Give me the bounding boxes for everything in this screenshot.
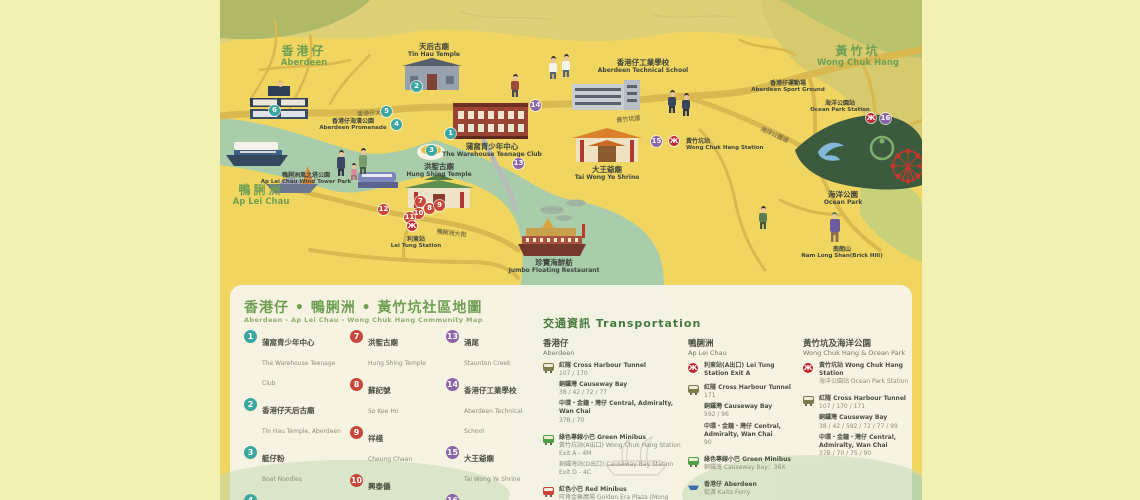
map-marker-6: 6 [269, 105, 280, 116]
label-lei-tung-station: 利東站Lei Tung Station [391, 236, 441, 250]
map-marker-5: 5 [381, 106, 392, 117]
label-nam-long-shan: 南朗山Nam Long Shan(Brick Hill) [801, 246, 882, 260]
map-marker-13: 13 [513, 158, 524, 169]
mtr-icon [407, 221, 417, 231]
legend-number: 13 [446, 330, 459, 343]
legend-number: 4 [244, 494, 257, 500]
bus-icon [543, 363, 554, 371]
label-technical-school: 香港仔工業學校Aberdeen Technical School [598, 58, 688, 74]
transport-row: 紅隧 Cross Harbour Tunnel 107 / 170 銅鑼灣 Ca… [543, 362, 681, 428]
transport-row: 紅色小巴 Red Minibus 旺角金雞廣場 Golden Era Plaza… [543, 486, 681, 500]
legend-item: 3艇仔粉Boat Noodles [244, 446, 344, 486]
fishmonger-figure [275, 80, 285, 96]
walker-figure [681, 93, 691, 116]
transport-row: 紅隧 Cross Harbour Tunnel 107 / 170 / 171 … [803, 395, 909, 461]
community-map-page: { "colors":{"outer_bg":"#f3f0b4","land":… [0, 0, 1140, 500]
legend-item: 4香港仔廣場(前香港仔船塢)Aberdeen Square (Former Ab… [244, 494, 344, 500]
transport-row: 黃竹坑站 Wong Chuk Hang Station 海洋公園站 Ocean … [803, 362, 909, 389]
walker-figure [667, 90, 677, 113]
student-figure [548, 56, 558, 79]
bus-icon [688, 385, 699, 393]
label-jumbo-restaurant: 珍寶海鮮舫Jumbo Floating Restaurant [509, 258, 600, 274]
map-marker-12: 12 [378, 204, 389, 215]
legend-item: 14香港仔工業學校Aberdeen Technical School [446, 378, 536, 438]
houseboat-illustration [358, 172, 398, 188]
legend-number: 2 [244, 398, 257, 411]
transport-row: 綠色專線小巴 Green Minibus 銅鑼灣 Causeway Bay：36… [688, 456, 796, 475]
mtr-icon [866, 113, 876, 123]
bus-icon [803, 396, 814, 404]
map-marker-3: 3 [426, 145, 437, 156]
hiker-figure [828, 212, 841, 242]
legend-item: 7洪聖古廟Hung Shing Temple [350, 330, 442, 370]
transport-header: 黃竹坑及海洋公園 [803, 337, 909, 349]
label-tai-wong-ye-shrine: 大王爺廟Tai Wong Ye Shrine [575, 165, 640, 181]
warehouse-illustration [453, 103, 528, 139]
label-promenade: 香港仔海濱公園Aberdeen Promenade [319, 118, 386, 132]
legend-item: 15大王爺廟Tai Wong Ye Shrine [446, 446, 536, 486]
legend-number: 8 [350, 378, 363, 391]
map-marker-2: 2 [411, 81, 422, 92]
map-marker-16: 16 [880, 113, 891, 124]
green-minibus-icon [688, 457, 699, 465]
label-sport-ground: 香港仔運動場Aberdeen Sport Ground [751, 80, 825, 94]
green-minibus-icon [543, 435, 554, 443]
transport-ap-lei-chau: 鴨脷洲 Ap Lei Chau 利東站(A出口) Lei Tung Statio… [688, 337, 796, 500]
label-hung-shing-temple: 洪聖古廟Hung Shing Temple [406, 162, 471, 178]
transport-row: 綠色專線小巴 Green Minibus 黃竹坑站(A出口) Wong Chuk… [543, 434, 681, 480]
map-marker-15: 15 [651, 136, 662, 147]
transport-header: 香港仔 [543, 337, 681, 349]
transportation-title: 交通資訊 Transportation [543, 315, 701, 331]
transport-row: 香港仔 Aberdeen 街渡 Kaito Ferry [688, 481, 796, 500]
legend-item: 16香港海洋公園Ocean Park Hong Kong [446, 494, 536, 500]
label-ocean-park-station: 海洋公園站Ocean Park Station [810, 100, 870, 114]
map-marker-4: 4 [391, 119, 402, 130]
label-wong-chuk-hang: 黃竹坑Wong Chuk Hang [817, 44, 899, 69]
legend-number: 3 [244, 446, 257, 459]
legend-number: 16 [446, 494, 459, 500]
legend-column-aberdeen: 1蒲窩青少年中心The Warehouse Teenage Club 2香港仔天… [244, 330, 344, 500]
legend-number: 10 [350, 474, 363, 487]
mtr-icon [669, 136, 679, 146]
legend-number: 15 [446, 446, 459, 459]
label-ocean-park: 海洋公園Ocean Park [824, 190, 862, 206]
panel-subtitle: Aberdeen - Ap Lei Chau - Wong Chuk Hang … [244, 316, 483, 324]
legend-number: 9 [350, 426, 363, 439]
legend-column-ap-lei-chau: 7洪聖古廟Hung Shing Temple 8蘇記號So Kee Ho 9祥棧… [350, 330, 442, 500]
legend-item: 9祥棧Cheung Chaan [350, 426, 442, 466]
elder-figure [510, 74, 520, 97]
legend-item: 1蒲窩青少年中心The Warehouse Teenage Club [244, 330, 344, 390]
illustrated-map: 香港仔Aberdeen 黃竹坑Wong Chuk Hang 鴨脷洲Ap Lei … [220, 0, 922, 500]
map-marker-14: 14 [530, 100, 541, 111]
red-minibus-icon [543, 487, 554, 495]
legend-number: 7 [350, 330, 363, 343]
transport-row: 紅隧 Cross Harbour Tunnel 171 銅鑼灣 Causeway… [688, 384, 796, 450]
label-wind-tower-park: 鴨脷洲風之塔公園Ap Lei Chau Wind Tower Park [261, 172, 352, 186]
transport-aberdeen: 香港仔 Aberdeen 紅隧 Cross Harbour Tunnel 107… [543, 337, 681, 500]
label-aberdeen: 香港仔Aberdeen [281, 44, 327, 69]
label-warehouse: 蒲窩青少年中心The Warehouse Teenage Club [442, 142, 542, 158]
legend-item: 10興泰儀Hing Tai Yee [350, 474, 442, 500]
student-figure [561, 54, 571, 77]
map-marker-1: 1 [445, 128, 456, 139]
transport-wong-chuk-hang: 黃竹坑及海洋公園 Wong Chuk Hang & Ocean Park 黃竹坑… [803, 337, 909, 467]
transport-row: 利東站(A出口) Lei Tung Station Exit A [688, 362, 796, 378]
ferry-icon [688, 482, 699, 490]
mtr-icon [803, 363, 813, 373]
panel-title: 香港仔 • 鴨脷洲 • 黃竹坑社區地圖 [244, 297, 482, 317]
legend-column-wong-chuk-hang: 13涌尾Staunton Creek 14香港仔工業學校Aberdeen Tec… [446, 330, 536, 500]
parent-figure [358, 148, 368, 174]
label-tin-hau-temple: 天后古廟Tin Hau Temple [408, 42, 460, 58]
legend-item: 2香港仔天后古廟Tin Hau Temple, Aberdeen [244, 398, 344, 438]
map-marker-9: 9 [434, 200, 445, 211]
legend-number: 14 [446, 378, 459, 391]
transport-header: 鴨脷洲 [688, 337, 796, 349]
legend-item: 8蘇記號So Kee Ho [350, 378, 442, 418]
student-figure [758, 206, 768, 229]
mtr-icon [688, 363, 698, 373]
legend-item: 13涌尾Staunton Creek [446, 330, 536, 370]
label-ap-lei-chau-main-street: 鴨脷洲大街 [436, 218, 468, 241]
label-wong-chuk-hang-station: 黃竹坑站Wong Chuk Hang Station [686, 138, 763, 152]
label-ap-lei-chau: 鴨脷洲Ap Lei Chau [233, 183, 290, 208]
legend-number: 1 [244, 330, 257, 343]
legend-panel: 香港仔 • 鴨脷洲 • 黃竹坑社區地圖 Aberdeen - Ap Lei Ch… [230, 285, 912, 500]
label-wong-chuk-hang-road: 黃竹坑道 [615, 105, 641, 127]
